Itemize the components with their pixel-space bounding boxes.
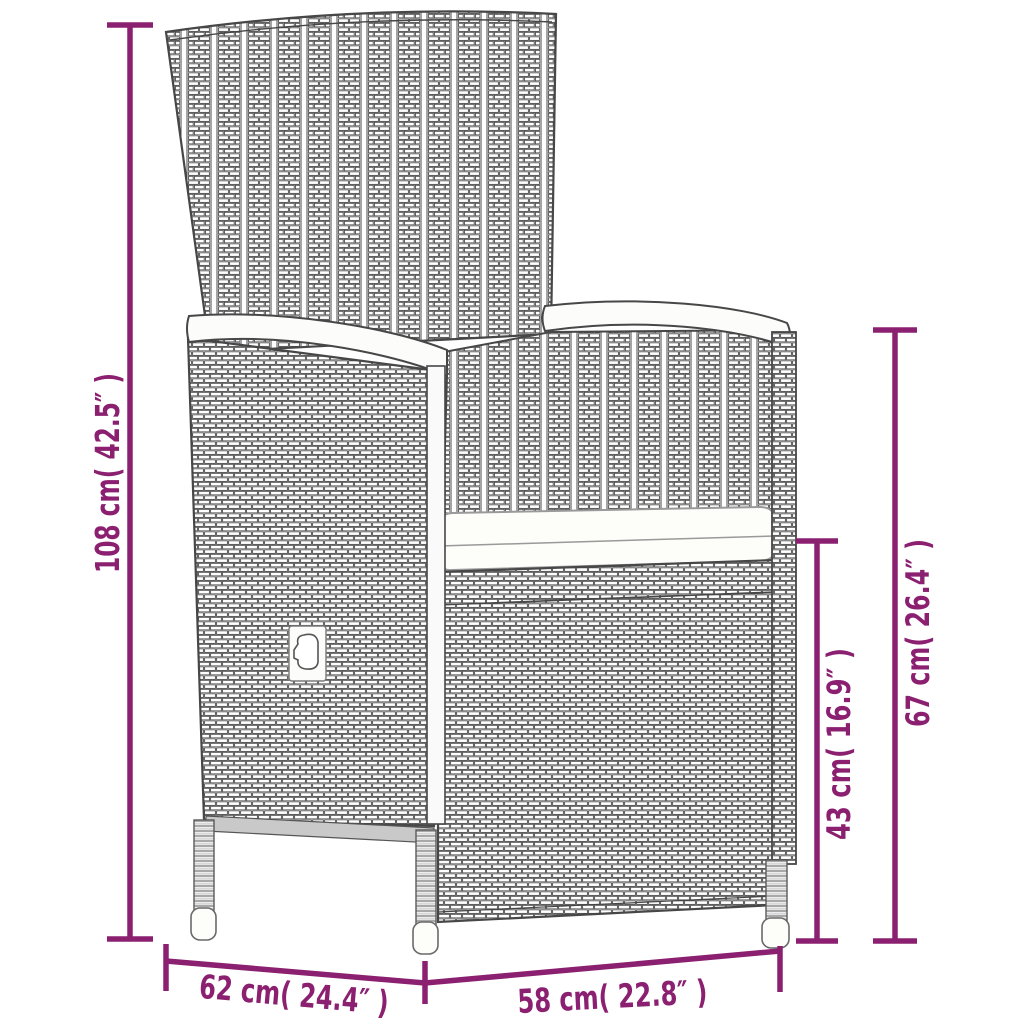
recline-latch-knob bbox=[294, 634, 318, 669]
seat-cushion bbox=[438, 507, 776, 570]
chair-backrest bbox=[166, 11, 556, 352]
width-label: 58 cm( 22.8″ ) bbox=[517, 972, 709, 1021]
chair-diagram-canvas: 108 cm( 42.5″ ) 67 cm( 26.4″ ) 43 cm( 16… bbox=[0, 0, 1024, 1024]
chair-right-leg bbox=[766, 860, 787, 922]
chair-left-side-panel bbox=[188, 338, 447, 826]
dimension-diagram: 108 cm( 42.5″ ) 67 cm( 26.4″ ) 43 cm( 16… bbox=[0, 0, 1024, 1024]
chair-seat-base bbox=[438, 560, 775, 922]
back-height-label: 67 cm( 26.4″ ) bbox=[899, 539, 937, 727]
chair-illustration bbox=[166, 11, 796, 954]
chair-middle-leg bbox=[416, 830, 436, 926]
overall-height-label: 108 cm( 42.5″ ) bbox=[88, 373, 127, 573]
chair-middle-foot bbox=[413, 922, 438, 954]
chair-front-left-post bbox=[427, 366, 445, 824]
chair-back-spindle-panel bbox=[444, 330, 789, 528]
chair-left-leg bbox=[194, 820, 214, 914]
chair-right-post bbox=[772, 332, 796, 864]
chair-left-foot bbox=[191, 908, 216, 940]
seat-height-label: 43 cm( 16.9″ ) bbox=[820, 648, 858, 840]
chair-right-foot bbox=[762, 918, 789, 948]
